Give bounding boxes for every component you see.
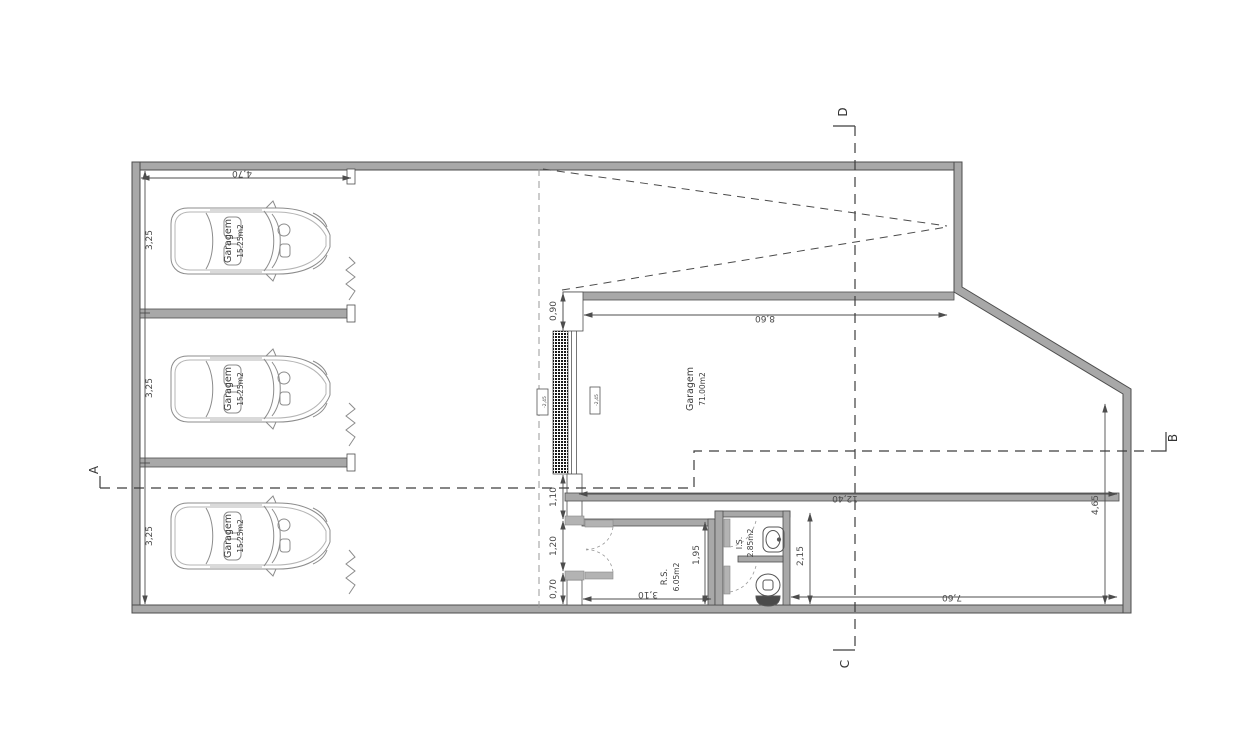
big-garage-area: 71.00m2 (698, 372, 707, 406)
stall-2-area: 15.25m2 (236, 372, 245, 406)
dim-stall-depths: 3,25 3,25 3,25 (140, 171, 155, 604)
right-wall-with-chamfer (954, 162, 1131, 613)
section-ab-dashed-path (100, 451, 1156, 488)
is-divider-wall (738, 556, 783, 562)
sink-tap (777, 538, 780, 541)
rs-door-leaf-top (585, 520, 613, 527)
bottom-wall (132, 605, 1131, 613)
top-wall (132, 162, 962, 170)
top-wall-pilaster (347, 169, 355, 184)
car-3 (171, 496, 330, 576)
is-door-leaf-lower (724, 566, 730, 594)
dim-rs-depth: 1,95 (692, 522, 705, 604)
dim-below-ramp: 1,10 (549, 475, 563, 519)
stall-3-area: 15.25m2 (236, 519, 245, 553)
section-line-cd: D C (833, 107, 855, 668)
garage-stall-3: Garagem 15.25m2 (171, 496, 330, 576)
dim-is-depth-text: 2,15 (796, 546, 806, 566)
is-area: 2.85m2 (746, 528, 755, 557)
toilet-fixture (756, 574, 780, 606)
dim-rs-width-text: 3,10 (638, 589, 658, 599)
toilet-flush (763, 580, 773, 590)
dim-rs-stub: 0,70 (549, 573, 563, 604)
left-wall (132, 162, 140, 613)
outer-walls (132, 162, 1131, 613)
stall-1-area: 15.25m2 (236, 224, 245, 258)
dim-garage-width: 8,60 (584, 313, 947, 323)
rs-label: R.S. (660, 569, 670, 585)
is-east-wall (783, 511, 790, 605)
level-value-2: -2,45 (594, 394, 600, 406)
partition-wall-2 (140, 458, 350, 467)
section-b-tick (1156, 432, 1166, 451)
dim-is-depth: 2,15 (796, 513, 810, 604)
toilet-bowl (756, 574, 780, 596)
dim-right-side: 4,65 (1091, 404, 1105, 604)
dim-ramp-wall-text: 0,90 (549, 301, 559, 321)
hatched-ramp-wall (553, 331, 568, 474)
dim-yard-width-text: 7,60 (942, 592, 962, 602)
partition-wall-1 (140, 309, 350, 318)
section-a-letter: A (87, 465, 101, 474)
rs-west-stub (567, 580, 582, 605)
break-line-stall-3 (346, 550, 355, 594)
dim-lower-span-text: 12,40 (832, 493, 858, 503)
rs-door-leaf-bottom (585, 572, 613, 579)
stall-1-label: Garagem (223, 219, 234, 263)
big-garage-label: Garagem (685, 367, 696, 411)
big-garage-north-wall (563, 292, 954, 300)
partition-end-cap-1 (347, 305, 355, 322)
stall-3-label: Garagem (223, 514, 234, 558)
dim-yard-width: 7,60 (791, 592, 1117, 602)
dim-below-ramp-text: 1,10 (549, 487, 559, 507)
rs-east-wall (708, 519, 715, 605)
floor-plan-sheet: Garagem 15.25m2 Garagem 15.25m2 Garagem … (0, 0, 1235, 751)
dim-rs-depth-text: 1,95 (692, 545, 702, 565)
is-label: I.S. (735, 537, 744, 550)
dim-stall-1-depth-text: 3,25 (145, 230, 155, 250)
dim-stall-2-depth-text: 3,25 (145, 378, 155, 398)
rs-door-jamb-bottom (565, 571, 584, 580)
dim-ramp-wall: 0,90 (549, 293, 563, 330)
section-d-letter: D (836, 107, 850, 116)
sink-fixture (763, 527, 784, 552)
level-value-1: -2,45 (542, 396, 548, 408)
stall-partitions (140, 169, 355, 471)
is-door-swing-lower (730, 566, 756, 592)
section-c-letter: C (838, 660, 852, 668)
break-line-stall-2 (346, 403, 355, 446)
dim-stall-width-text: 4,70 (232, 168, 252, 178)
dim-rs-door-text: 1,20 (549, 536, 559, 556)
is-room: I.S. 2.85m2 (715, 511, 790, 606)
dim-rs-width: 3,10 (583, 589, 711, 599)
dim-rs-stub-text: 0,70 (549, 579, 559, 599)
is-north-wall (715, 511, 790, 517)
rs-area: 6.05m2 (672, 562, 681, 591)
rs-door-swing-top (586, 527, 613, 550)
dim-rs-door: 1,20 (549, 521, 563, 571)
is-west-wall (715, 511, 723, 605)
partition-end-cap-2 (347, 454, 355, 471)
big-garage: Garagem 71.00m2 (563, 292, 1119, 518)
ramp-direction-dashed-lines (543, 169, 947, 290)
toilet-base (756, 596, 780, 606)
break-line-stall-1 (346, 257, 355, 300)
car-1 (171, 201, 330, 281)
is-door-leaf-upper (724, 519, 730, 547)
wall-stub-above-ramp (563, 292, 583, 331)
floor-plan-canvas: Garagem 15.25m2 Garagem 15.25m2 Garagem … (0, 0, 1235, 751)
garage-stall-1: Garagem 15.25m2 (171, 201, 330, 281)
garage-stall-2: Garagem 15.25m2 (171, 349, 330, 429)
dim-stall-3-depth-text: 3,25 (145, 526, 155, 546)
rs-door-jamb-top (565, 516, 584, 525)
dim-right-side-text: 4,65 (1091, 495, 1101, 515)
section-b-letter: B (1166, 434, 1180, 442)
rs-door-swing-bottom (586, 549, 613, 572)
stall-2-label: Garagem (223, 367, 234, 411)
dim-garage-width-text: 8,60 (755, 313, 775, 323)
car-2 (171, 349, 330, 429)
